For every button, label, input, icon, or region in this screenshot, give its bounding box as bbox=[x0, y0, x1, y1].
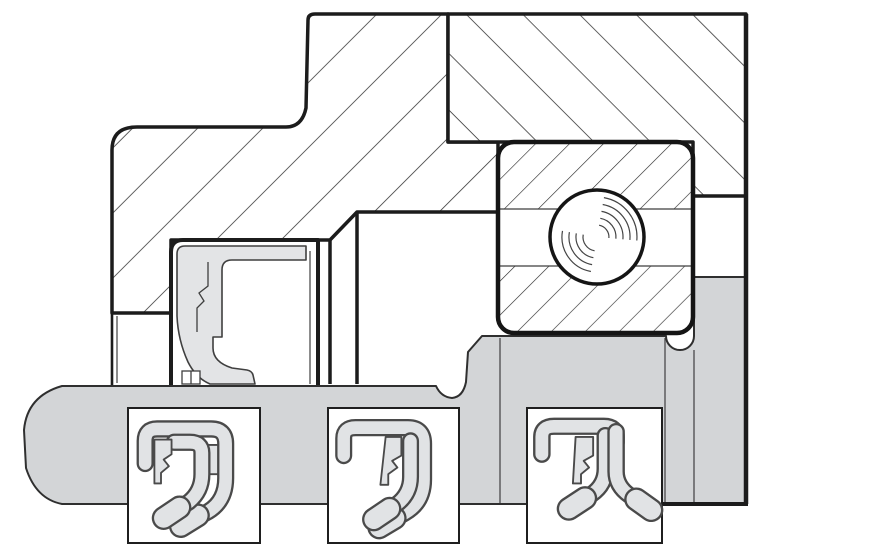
inset-variant-2 bbox=[328, 408, 459, 543]
seal-bearing-cross-section bbox=[0, 0, 890, 556]
ball-bearing bbox=[498, 142, 693, 333]
inset-variant-3 bbox=[527, 408, 662, 543]
v1-inner-foot bbox=[164, 507, 180, 518]
v3-left-foot bbox=[569, 498, 585, 509]
radial-shaft-seal bbox=[171, 240, 318, 385]
inset-variant-1 bbox=[128, 408, 260, 543]
technical-diagram bbox=[0, 0, 890, 556]
v2-inner-foot bbox=[374, 509, 390, 520]
v3-right-foot bbox=[636, 499, 651, 510]
